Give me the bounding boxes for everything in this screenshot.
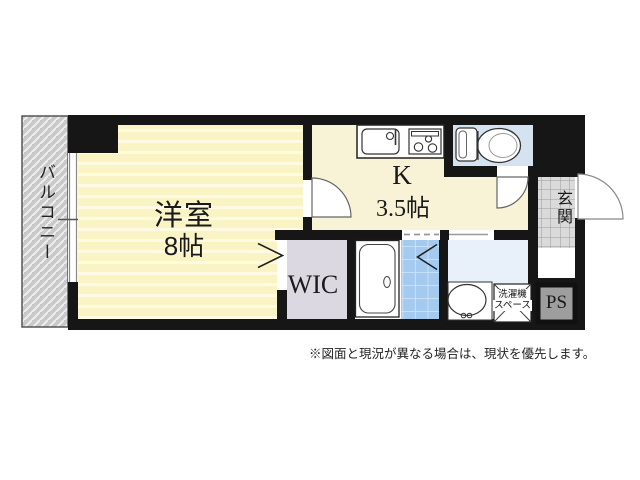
western-room-size-label: 8帖 bbox=[104, 226, 264, 263]
laundry-space-label: 洗濯機 スペース bbox=[493, 289, 532, 312]
kitchen-label: K bbox=[352, 160, 452, 191]
disclaimer-text: ※図面と現況が異なる場合は、現状を優先します。 bbox=[309, 343, 595, 362]
kitchen-counter bbox=[357, 125, 444, 158]
floorplan-drawing bbox=[0, 0, 640, 480]
balcony-label: バルコニー bbox=[33, 163, 58, 323]
door-entrance bbox=[575, 174, 623, 219]
pipe-space-label: PS bbox=[538, 292, 575, 314]
sliding-opening-washroom bbox=[449, 230, 494, 240]
kitchen-sink-icon bbox=[362, 129, 399, 154]
laundry-line1: 洗濯機 bbox=[497, 289, 528, 300]
laundry-line2: スペース bbox=[493, 300, 532, 311]
toilet-icon bbox=[456, 128, 521, 163]
wic-label: WIC bbox=[282, 270, 344, 300]
washbasin-icon bbox=[448, 282, 492, 320]
gas-stove-icon bbox=[409, 129, 441, 154]
kitchen-size-label: 3.5帖 bbox=[338, 188, 468, 223]
entrance-label: 玄関 bbox=[540, 182, 574, 234]
floorplan-canvas: バルコニー 洋室 8帖 K 3.5帖 WIC 玄関 PS 洗濯機 スペース ※図… bbox=[0, 0, 640, 480]
bathtub-icon bbox=[356, 241, 400, 318]
shower-tile-floor bbox=[401, 240, 439, 320]
entrance-step bbox=[538, 248, 575, 278]
